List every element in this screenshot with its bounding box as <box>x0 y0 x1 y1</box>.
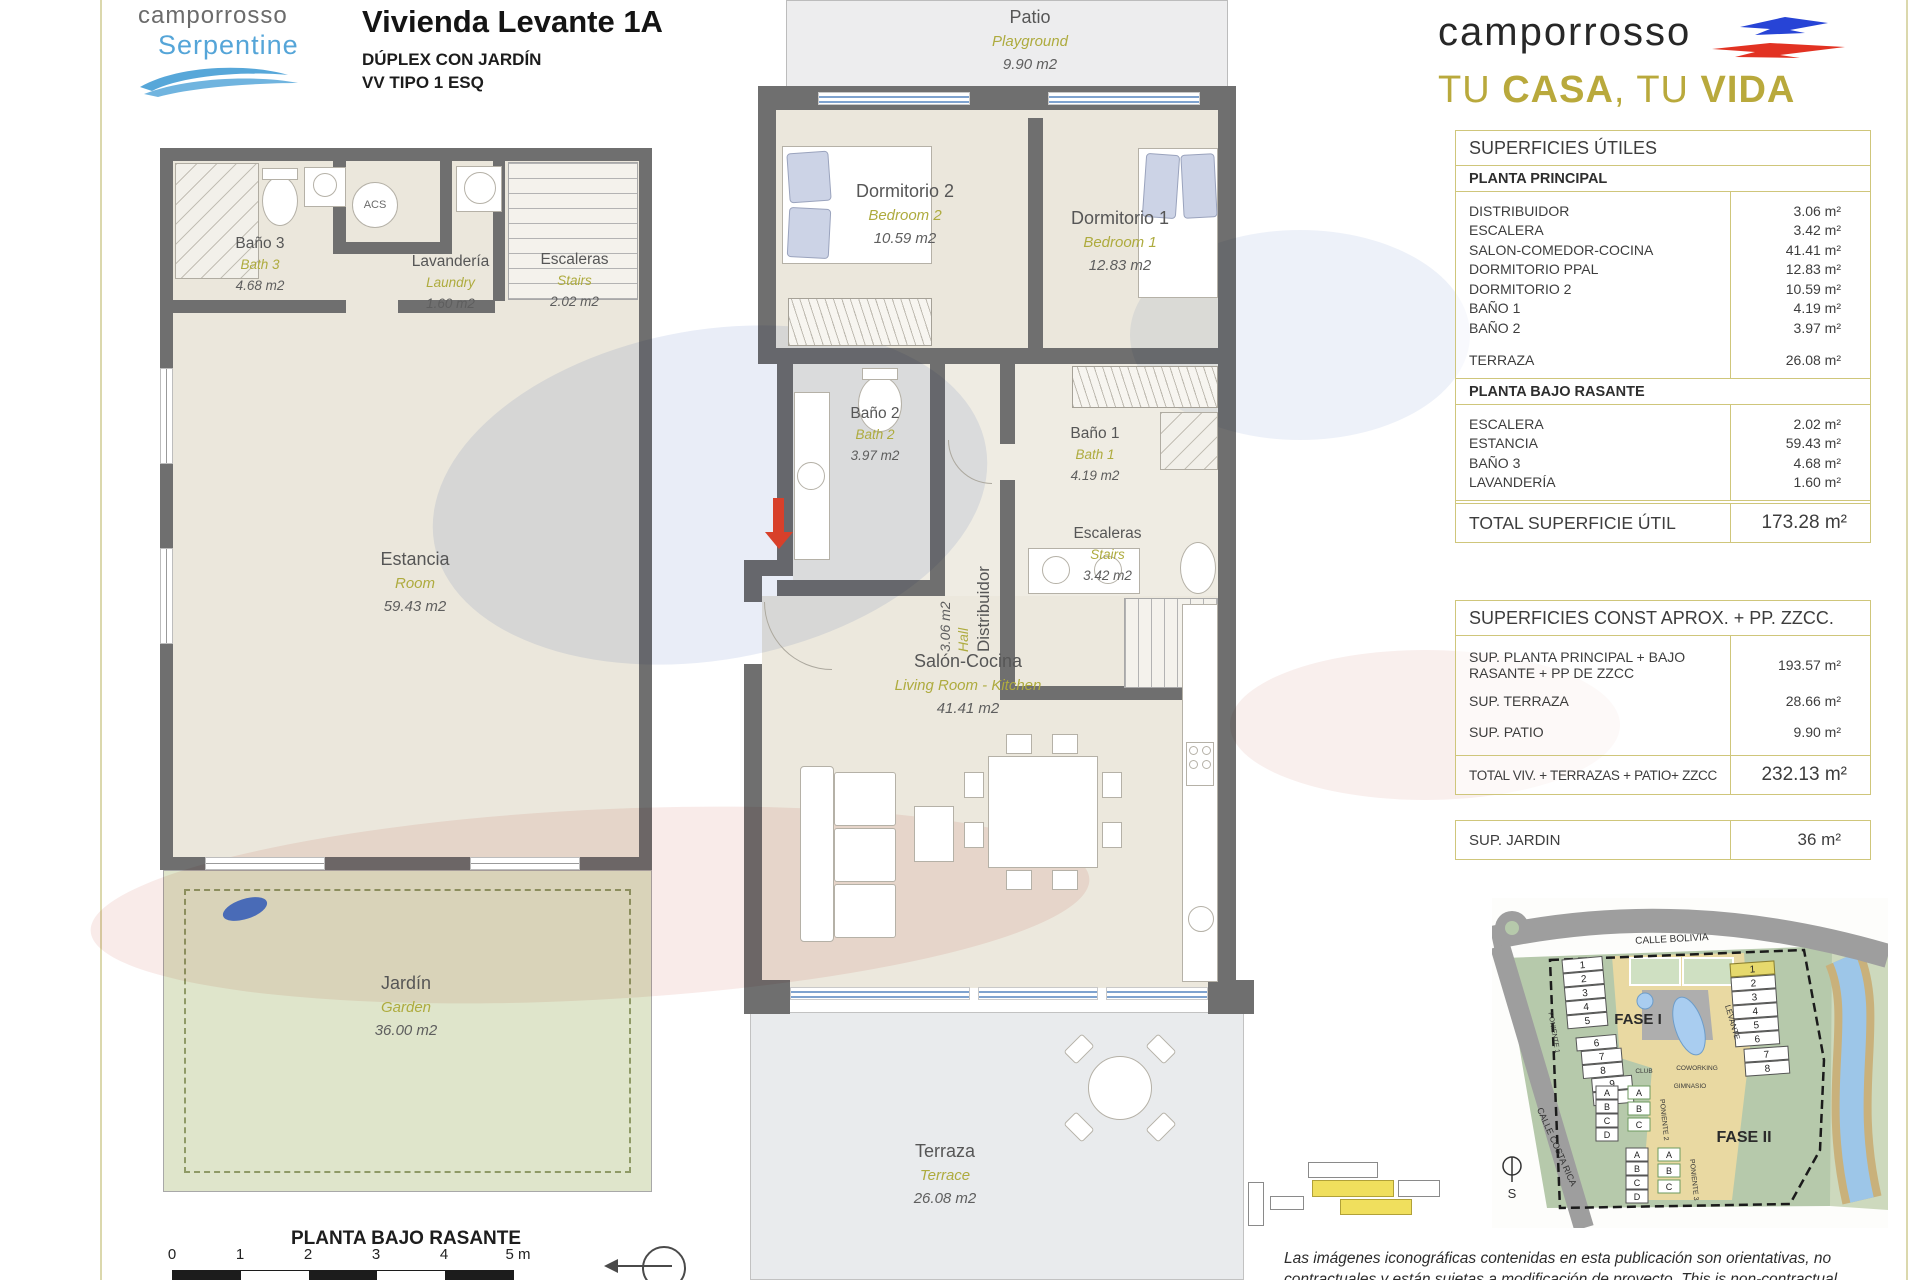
block-letter: C <box>1666 1182 1673 1192</box>
wall <box>744 664 762 1000</box>
table-row: LAVANDERÍA1.60 m² <box>1456 473 1870 493</box>
scale-tick: 3 <box>372 1246 380 1263</box>
hob-burner <box>1202 746 1211 755</box>
table-row: SUP. JARDIN 36 m² <box>1456 821 1870 859</box>
sofa-cushion <box>834 884 896 938</box>
wall <box>1218 700 1236 1000</box>
surface-table-jardin: SUP. JARDIN 36 m² <box>1455 820 1871 860</box>
table-total-row: TOTAL SUPERFICIE ÚTIL 173.28 m² <box>1456 503 1870 542</box>
table-row: BAÑO 14.19 m² <box>1456 299 1870 319</box>
wardrobe-icon <box>1072 366 1218 408</box>
brush-logo-icon <box>1710 15 1850 67</box>
wave-icon <box>138 61 338 97</box>
block-letter: C <box>1634 1178 1641 1188</box>
surface-table-construidas: SUPERFICIES CONST APROX. + PP. ZZCC. SUP… <box>1455 600 1871 795</box>
washer-drum <box>464 172 496 204</box>
table-row: TERRAZA26.08 m² <box>1456 351 1870 371</box>
sink-icon <box>797 462 825 490</box>
wall <box>744 980 790 1014</box>
brand-left: camporrosso Serpentine <box>138 2 338 102</box>
table-row: ESCALERA2.02 m² <box>1456 414 1870 434</box>
terrace-table <box>1088 1056 1152 1120</box>
room-label-bano2: Baño 2 Bath 2 3.97 m2 <box>795 402 955 466</box>
block-letter: C <box>1604 1116 1611 1126</box>
table-row: DORMITORIO 210.59 m² <box>1456 279 1870 299</box>
table-body: ESCALERA2.02 m² ESTANCIA59.43 m² BAÑO 34… <box>1456 405 1870 500</box>
block-letter: B <box>1634 1164 1640 1174</box>
surface-table-utiles: SUPERFICIES ÚTILES PLANTA PRINCIPAL DIST… <box>1455 130 1871 543</box>
scale-bar-segments <box>172 1270 514 1280</box>
room-label-terraza: Terraza Terrace 26.08 m2 <box>845 1138 1045 1210</box>
tagline-b2: VIDA <box>1701 69 1796 111</box>
table-row: SALON-COMEDOR-COCINA41.41 m² <box>1456 240 1870 260</box>
window <box>160 548 173 644</box>
sofa-cushion <box>834 772 896 826</box>
column-divider <box>1730 636 1732 755</box>
scale-tick: 2 <box>304 1246 312 1263</box>
page-subtitle-2: VV TIPO 1 ESQ <box>362 71 663 94</box>
chair <box>1052 734 1078 754</box>
window <box>818 92 970 105</box>
tagline-t1: TU <box>1438 69 1502 111</box>
entry-arrow <box>773 498 784 532</box>
window <box>470 857 580 870</box>
map-compass-label: S <box>1508 1186 1517 1201</box>
table-row: BAÑO 23.97 m² <box>1456 318 1870 338</box>
window <box>790 987 970 1000</box>
scale-tick: 5 m <box>505 1246 530 1263</box>
wall <box>1218 110 1236 362</box>
table-row: ESTANCIA59.43 m² <box>1456 434 1870 454</box>
chair <box>964 822 984 848</box>
sofa-cushion <box>834 828 896 882</box>
chair <box>1006 734 1032 754</box>
disclaimer-line2: contractuales y están sujetas a modifica… <box>1284 1269 1920 1280</box>
brand-right: camporrosso TU CASA, TU VIDA <box>1438 10 1850 112</box>
tagline-t2: , TU <box>1614 69 1701 111</box>
block-letter: C <box>1636 1120 1643 1130</box>
window <box>1106 987 1208 1000</box>
title-block: Vivienda Levante 1A DÚPLEX CON JARDÍN VV… <box>362 4 663 94</box>
chair <box>1052 870 1078 890</box>
block-letter: B <box>1604 1102 1610 1112</box>
table-total-row: TOTAL VIV. + TERRAZAS + PATIO+ ZZCC 232.… <box>1456 755 1870 794</box>
table-row: SUP. TERRAZA28.66 m² <box>1456 685 1870 716</box>
coworking-label: COWORKING <box>1676 1065 1718 1072</box>
wall <box>758 110 776 362</box>
room-label-lavanderia: Lavandería Laundry 1.60 m2 <box>378 250 523 314</box>
compass-needle <box>616 1265 672 1267</box>
block-letter: B <box>1666 1166 1672 1176</box>
block-letter: A <box>1636 1088 1642 1098</box>
room-label-bano3: Baño 3 Bath 3 4.68 m2 <box>190 232 330 296</box>
column-divider <box>1730 504 1732 542</box>
room-label-escaleras-lower: Escaleras Stairs 2.02 m2 <box>512 248 637 312</box>
room-label-dorm1: Dormitorio 1 Bedroom 1 12.83 m2 <box>1025 205 1215 277</box>
coffee-table <box>914 806 954 862</box>
wall <box>1218 362 1236 700</box>
north-compass-icon <box>642 1246 686 1280</box>
window <box>160 368 173 464</box>
table-row: DISTRIBUIDOR3.06 m² <box>1456 201 1870 221</box>
room-label-distribuidor: 3.06 m2 Hall Distribuidor <box>938 412 1016 652</box>
window <box>1048 92 1200 105</box>
column-divider <box>1730 192 1732 378</box>
table-row: ESCALERA3.42 m² <box>1456 221 1870 241</box>
toilet-icon <box>262 176 298 226</box>
disclaimer: Las imágenes iconográficas contenidas en… <box>1284 1248 1920 1280</box>
wall <box>173 300 346 313</box>
room-label-dorm2: Dormitorio 2 Bedroom 2 10.59 m2 <box>810 178 1000 250</box>
scale-tick: 1 <box>236 1246 244 1263</box>
brand-tagline: TU CASA, TU VIDA <box>1438 69 1850 112</box>
table-row: SUP. PATIO9.90 m² <box>1456 716 1870 747</box>
fase2-label: FASE II <box>1716 1129 1771 1146</box>
page-border-left <box>100 0 102 1280</box>
kitchen-sink-icon <box>1188 906 1214 932</box>
room-label-estancia: Estancia Room 59.43 m2 <box>315 546 515 618</box>
unit-location-diagram <box>1248 1140 1460 1226</box>
toilet-icon <box>1180 542 1216 594</box>
table-row: DORMITORIO PPAL12.83 m² <box>1456 260 1870 280</box>
section-header: PLANTA PRINCIPAL <box>1456 166 1870 192</box>
table-title: SUPERFICIES ÚTILES <box>1456 131 1870 166</box>
brand-right-name: camporrosso <box>1438 10 1691 54</box>
plan-lower-caption: PLANTA BAJO RASANTE <box>160 1228 652 1250</box>
wardrobe-icon <box>788 298 932 346</box>
gimnasio-label: GIMNASIO <box>1674 1083 1707 1090</box>
disclaimer-line1: Las imágenes iconográficas contenidas en… <box>1284 1248 1920 1269</box>
chair <box>964 772 984 798</box>
table-body: SUP. PLANTA PRINCIPAL + BAJO RASANTE + P… <box>1456 636 1870 755</box>
hob-burner <box>1189 746 1198 755</box>
hob-burner <box>1202 760 1211 769</box>
wall <box>777 580 945 596</box>
entry-arrow-head <box>765 532 793 549</box>
chair <box>1102 772 1122 798</box>
column-divider <box>1730 405 1732 500</box>
wall <box>744 576 762 602</box>
window <box>205 857 325 870</box>
block-letter: D <box>1634 1192 1641 1202</box>
scale-tick: 0 <box>168 1246 176 1263</box>
column-divider <box>1730 756 1732 794</box>
wall <box>1208 980 1254 1014</box>
window <box>978 987 1098 1000</box>
table-row: BAÑO 34.68 m² <box>1456 453 1870 473</box>
table-row: SUP. PLANTA PRINCIPAL + BAJO RASANTE + P… <box>1456 645 1870 685</box>
table-title: SUPERFICIES CONST APROX. + PP. ZZCC. <box>1456 601 1870 636</box>
block-letter: B <box>1636 1104 1642 1114</box>
toilet-tank <box>262 168 298 180</box>
acs-tank-icon: ACS <box>352 182 398 228</box>
page-border-right <box>1906 0 1908 1280</box>
room-label-bano1: Baño 1 Bath 1 4.19 m2 <box>1015 422 1175 486</box>
toilet-tank <box>862 368 898 380</box>
column-divider <box>1730 821 1732 859</box>
room-label-patio: Patio Playground 9.90 m2 <box>930 4 1130 76</box>
acs-label: ACS <box>364 199 387 211</box>
block-letter: A <box>1666 1150 1672 1160</box>
table-body: DISTRIBUIDOR3.06 m² ESCALERA3.42 m² SALO… <box>1456 192 1870 378</box>
room-label-escaleras-main: Escaleras Stairs 3.42 m2 <box>1040 522 1175 586</box>
wall <box>744 560 793 576</box>
sink-icon <box>313 173 337 197</box>
brand-left-line2: Serpentine <box>158 30 338 61</box>
block-letter: D <box>1604 1130 1611 1140</box>
page-title: Vivienda Levante 1A <box>362 4 663 40</box>
section-header: PLANTA BAJO RASANTE <box>1456 378 1870 405</box>
fase1-label: FASE I <box>1614 1011 1662 1028</box>
tagline-b1: CASA <box>1502 69 1614 111</box>
club-label: CLUB <box>1635 1068 1652 1075</box>
site-map: 1 2 3 4 5 6 7 8 9 10 1 2 3 4 5 6 7 <box>1492 898 1888 1228</box>
chair <box>1102 822 1122 848</box>
sofa-back <box>800 766 834 942</box>
block-letter: A <box>1634 1150 1640 1160</box>
plan-sheet: camporrosso Serpentine Vivienda Levante … <box>0 0 1920 1280</box>
wall <box>758 348 1236 364</box>
dining-table <box>988 756 1098 868</box>
brand-left-line1: camporrosso <box>138 2 338 30</box>
wall <box>440 161 452 254</box>
scale-tick: 4 <box>440 1246 448 1263</box>
compass-arrowhead <box>604 1259 618 1273</box>
room-label-salon: Salón-Cocina Living Room - Kitchen 41.41… <box>858 648 1078 720</box>
block-letter: A <box>1604 1088 1610 1098</box>
page-subtitle-1: DÚPLEX CON JARDÍN <box>362 48 663 71</box>
chair <box>1006 870 1032 890</box>
room-label-jardin: Jardín Garden 36.00 m2 <box>306 970 506 1042</box>
hob-burner <box>1189 760 1198 769</box>
site-map-svg: 1 2 3 4 5 6 7 8 9 10 1 2 3 4 5 6 7 <box>1492 898 1888 1228</box>
